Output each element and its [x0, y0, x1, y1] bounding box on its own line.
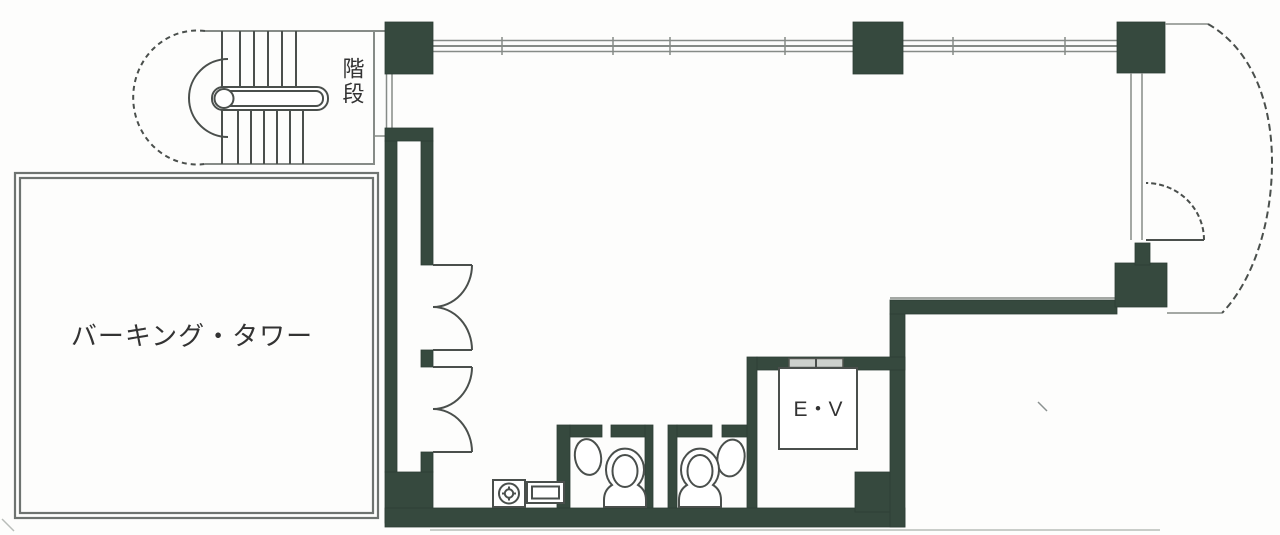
door-swing-arc	[433, 367, 472, 409]
restrooms	[557, 357, 757, 508]
shaft-right-wall-mid	[421, 350, 433, 367]
elevator-shaft	[757, 357, 905, 512]
sink-unit	[493, 480, 564, 507]
stall-front-wall	[722, 425, 747, 437]
stair-treads-lower	[222, 110, 303, 164]
toilet-seat	[688, 455, 713, 487]
upper-right-wall	[890, 300, 1117, 314]
stair-newel-post	[215, 89, 234, 108]
floor-plan-canvas: 階段 バーキング・タワー E・V	[0, 0, 1280, 535]
stairs-label: 階段	[338, 57, 366, 107]
bottom-wall	[385, 508, 905, 527]
stair-treads-upper	[222, 31, 296, 87]
door-swing-arc	[433, 265, 472, 307]
door-swing-arc	[433, 307, 472, 350]
faucet-symbol	[505, 489, 513, 497]
shaft-cap	[385, 128, 433, 141]
shaft-right-wall-upper	[421, 141, 433, 265]
entrance-door-swing-arc	[1146, 183, 1204, 240]
stall-front-wall	[677, 425, 712, 437]
right-side-wall	[890, 314, 905, 527]
door-swing-arc	[433, 409, 472, 452]
stall-front-wall	[570, 425, 602, 437]
floor-plan-drawing	[0, 0, 1280, 535]
entry-shaft-walls	[385, 73, 433, 523]
pillar	[1117, 22, 1165, 73]
top-window-wall	[433, 37, 1117, 55]
double-doors	[433, 265, 472, 452]
toilet-seat	[613, 455, 638, 487]
shaft-right-wall-lower	[421, 452, 433, 472]
pillar	[853, 22, 903, 74]
pillar	[385, 22, 433, 74]
elevator-label: E・V	[779, 397, 857, 423]
shaft-left-wall	[385, 141, 397, 472]
stall-partition	[668, 425, 677, 508]
wash-basin	[572, 437, 604, 477]
counterweight-block	[855, 472, 890, 512]
curved-facade-edge	[1208, 24, 1272, 313]
stall-front-wall	[611, 425, 645, 437]
stall-elevator-wall	[747, 357, 757, 508]
door-jamb-stub	[1135, 243, 1150, 265]
stair-outer-curve	[133, 30, 205, 164]
parking-tower-label: バーキング・タワー	[40, 320, 344, 353]
pillar	[1115, 263, 1167, 307]
